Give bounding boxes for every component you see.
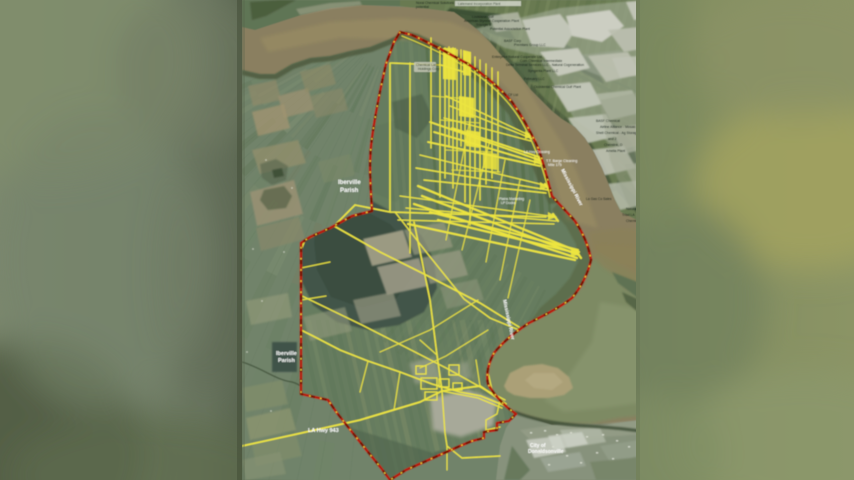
svg-text:Lallemand Incorporation Plant: Lallemand Incorporation Plant: [458, 2, 500, 6]
svg-text:Triad LA: Triad LA: [622, 213, 635, 217]
svg-text:Premises Group LLC: Premises Group LLC: [514, 43, 546, 47]
svg-text:Shell Chemical - Ag Storage: Shell Chemical - Ag Storage: [596, 131, 639, 135]
svg-text:La Gas Co Sales: La Gas Co Sales: [586, 197, 612, 201]
svg-text:Delta Terminal Services LLC -: Delta Terminal Services LLC - Natural Co…: [506, 63, 584, 67]
svg-text:Triangle II: Triangle II: [476, 23, 491, 27]
svg-text:LA Hwy Crossing: LA Hwy Crossing: [524, 150, 550, 154]
svg-text:Iberville: Iberville: [338, 180, 361, 186]
svg-text:and J: and J: [608, 137, 617, 141]
svg-text:American Styrene Cooperation P: American Styrene Cooperation Plant: [464, 19, 519, 23]
svg-text:Parish: Parish: [278, 358, 295, 364]
svg-text:Mile 175: Mile 175: [548, 163, 562, 167]
svg-text:LA Hwy 943: LA Hwy 943: [308, 428, 339, 434]
svg-text:Syngenta Plant LLC: Syngenta Plant LLC: [528, 69, 559, 73]
svg-text:CF Ltd: CF Ltd: [508, 93, 518, 97]
svg-text:Occidental Chemical Gulf Plant: Occidental Chemical Gulf Plant: [534, 85, 581, 89]
svg-text:Potential Association Plant: Potential Association Plant: [490, 27, 530, 31]
svg-text:Parish: Parish: [340, 188, 359, 194]
svg-text:LP Docks: LP Docks: [501, 201, 516, 205]
svg-text:Holdings Corp: Holdings Corp: [418, 67, 440, 71]
svg-text:Airline Alliance - Mosaic: Airline Alliance - Mosaic: [600, 125, 636, 129]
svg-text:BASF Chemical: BASF Chemical: [596, 119, 620, 123]
svg-text:Donaldsonville: Donaldsonville: [528, 449, 564, 455]
svg-text:Chemlink, D: Chemlink, D: [604, 143, 623, 147]
svg-text:February LLC: February LLC: [524, 77, 545, 81]
svg-text:Amelia Plant: Amelia Plant: [606, 149, 625, 153]
svg-text:Iberville: Iberville: [276, 351, 297, 357]
svg-text:potential: potential: [416, 5, 429, 9]
svg-text:Natural: Natural: [626, 207, 637, 211]
